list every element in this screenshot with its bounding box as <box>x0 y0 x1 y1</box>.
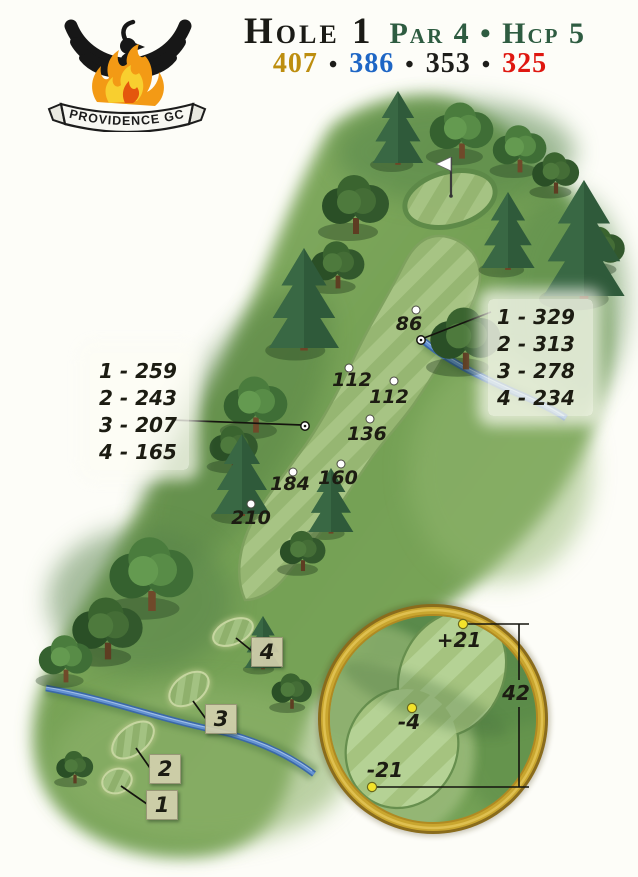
tee-label-1: 1 <box>146 790 178 820</box>
callout-row: 1 - 329 <box>497 304 587 331</box>
tee-label-3: 3 <box>205 704 237 734</box>
yardage-dot <box>390 377 398 385</box>
tee-distance-red: 325 <box>502 48 547 80</box>
callout-row: 1 - 259 <box>99 358 183 385</box>
separator-dot: • <box>482 52 491 79</box>
yardage-marker-label: 210 <box>231 507 271 529</box>
yardage-dot <box>366 415 374 423</box>
separator-dot: • <box>329 52 338 79</box>
right-yardage-callout: 1 - 329 2 - 313 3 - 278 4 - 234 <box>488 299 593 416</box>
tee-label-2: 2 <box>149 754 181 784</box>
par-hcp-label: Par 4 • Hcp 5 <box>389 17 586 51</box>
logo-banner: PROVIDENCE GC <box>49 104 205 132</box>
callout-row: 2 - 313 <box>497 331 587 358</box>
green-depth-label: 42 <box>502 681 530 705</box>
green-back-offset-label: +21 <box>437 628 482 652</box>
club-logo: PROVIDENCE GC <box>36 6 218 132</box>
separator-dot: • <box>405 52 414 79</box>
yardage-marker-label: 160 <box>318 467 358 489</box>
tee-distances: 407 • 386 • 353 • 325 <box>240 48 580 80</box>
tee-distance-gold: 407 <box>273 48 318 80</box>
yardage-marker-label: 136 <box>347 423 387 445</box>
yardage-marker-label: 112 <box>332 369 372 391</box>
green-depth-dot <box>367 782 376 791</box>
callout-row: 4 - 234 <box>497 385 587 412</box>
phoenix-logo-icon: PROVIDENCE GC <box>36 6 218 132</box>
tee-distance-blue: 386 <box>349 48 394 80</box>
yardage-marker-label: 184 <box>270 473 310 495</box>
yardage-book-page: PROVIDENCE GC Hole 1 Par 4 • Hcp 5 407 •… <box>0 0 638 877</box>
green-center-offset-label: -4 <box>398 710 420 734</box>
callout-row: 3 - 278 <box>497 358 587 385</box>
yardage-marker-label: 86 <box>396 313 422 335</box>
callout-row: 4 - 165 <box>99 439 183 466</box>
green-front-offset-label: -21 <box>367 758 403 782</box>
callout-row: 3 - 207 <box>99 412 183 439</box>
hole-header: Hole 1 Par 4 • Hcp 5 <box>205 10 625 53</box>
tee-distance-black: 353 <box>426 48 471 80</box>
left-yardage-callout: 1 - 259 2 - 243 3 - 207 4 - 165 <box>90 353 189 470</box>
yardage-marker-label: 112 <box>369 386 409 408</box>
hole-title: Hole 1 <box>244 10 373 53</box>
callout-row: 2 - 243 <box>99 385 183 412</box>
tee-label-4: 4 <box>251 637 283 667</box>
